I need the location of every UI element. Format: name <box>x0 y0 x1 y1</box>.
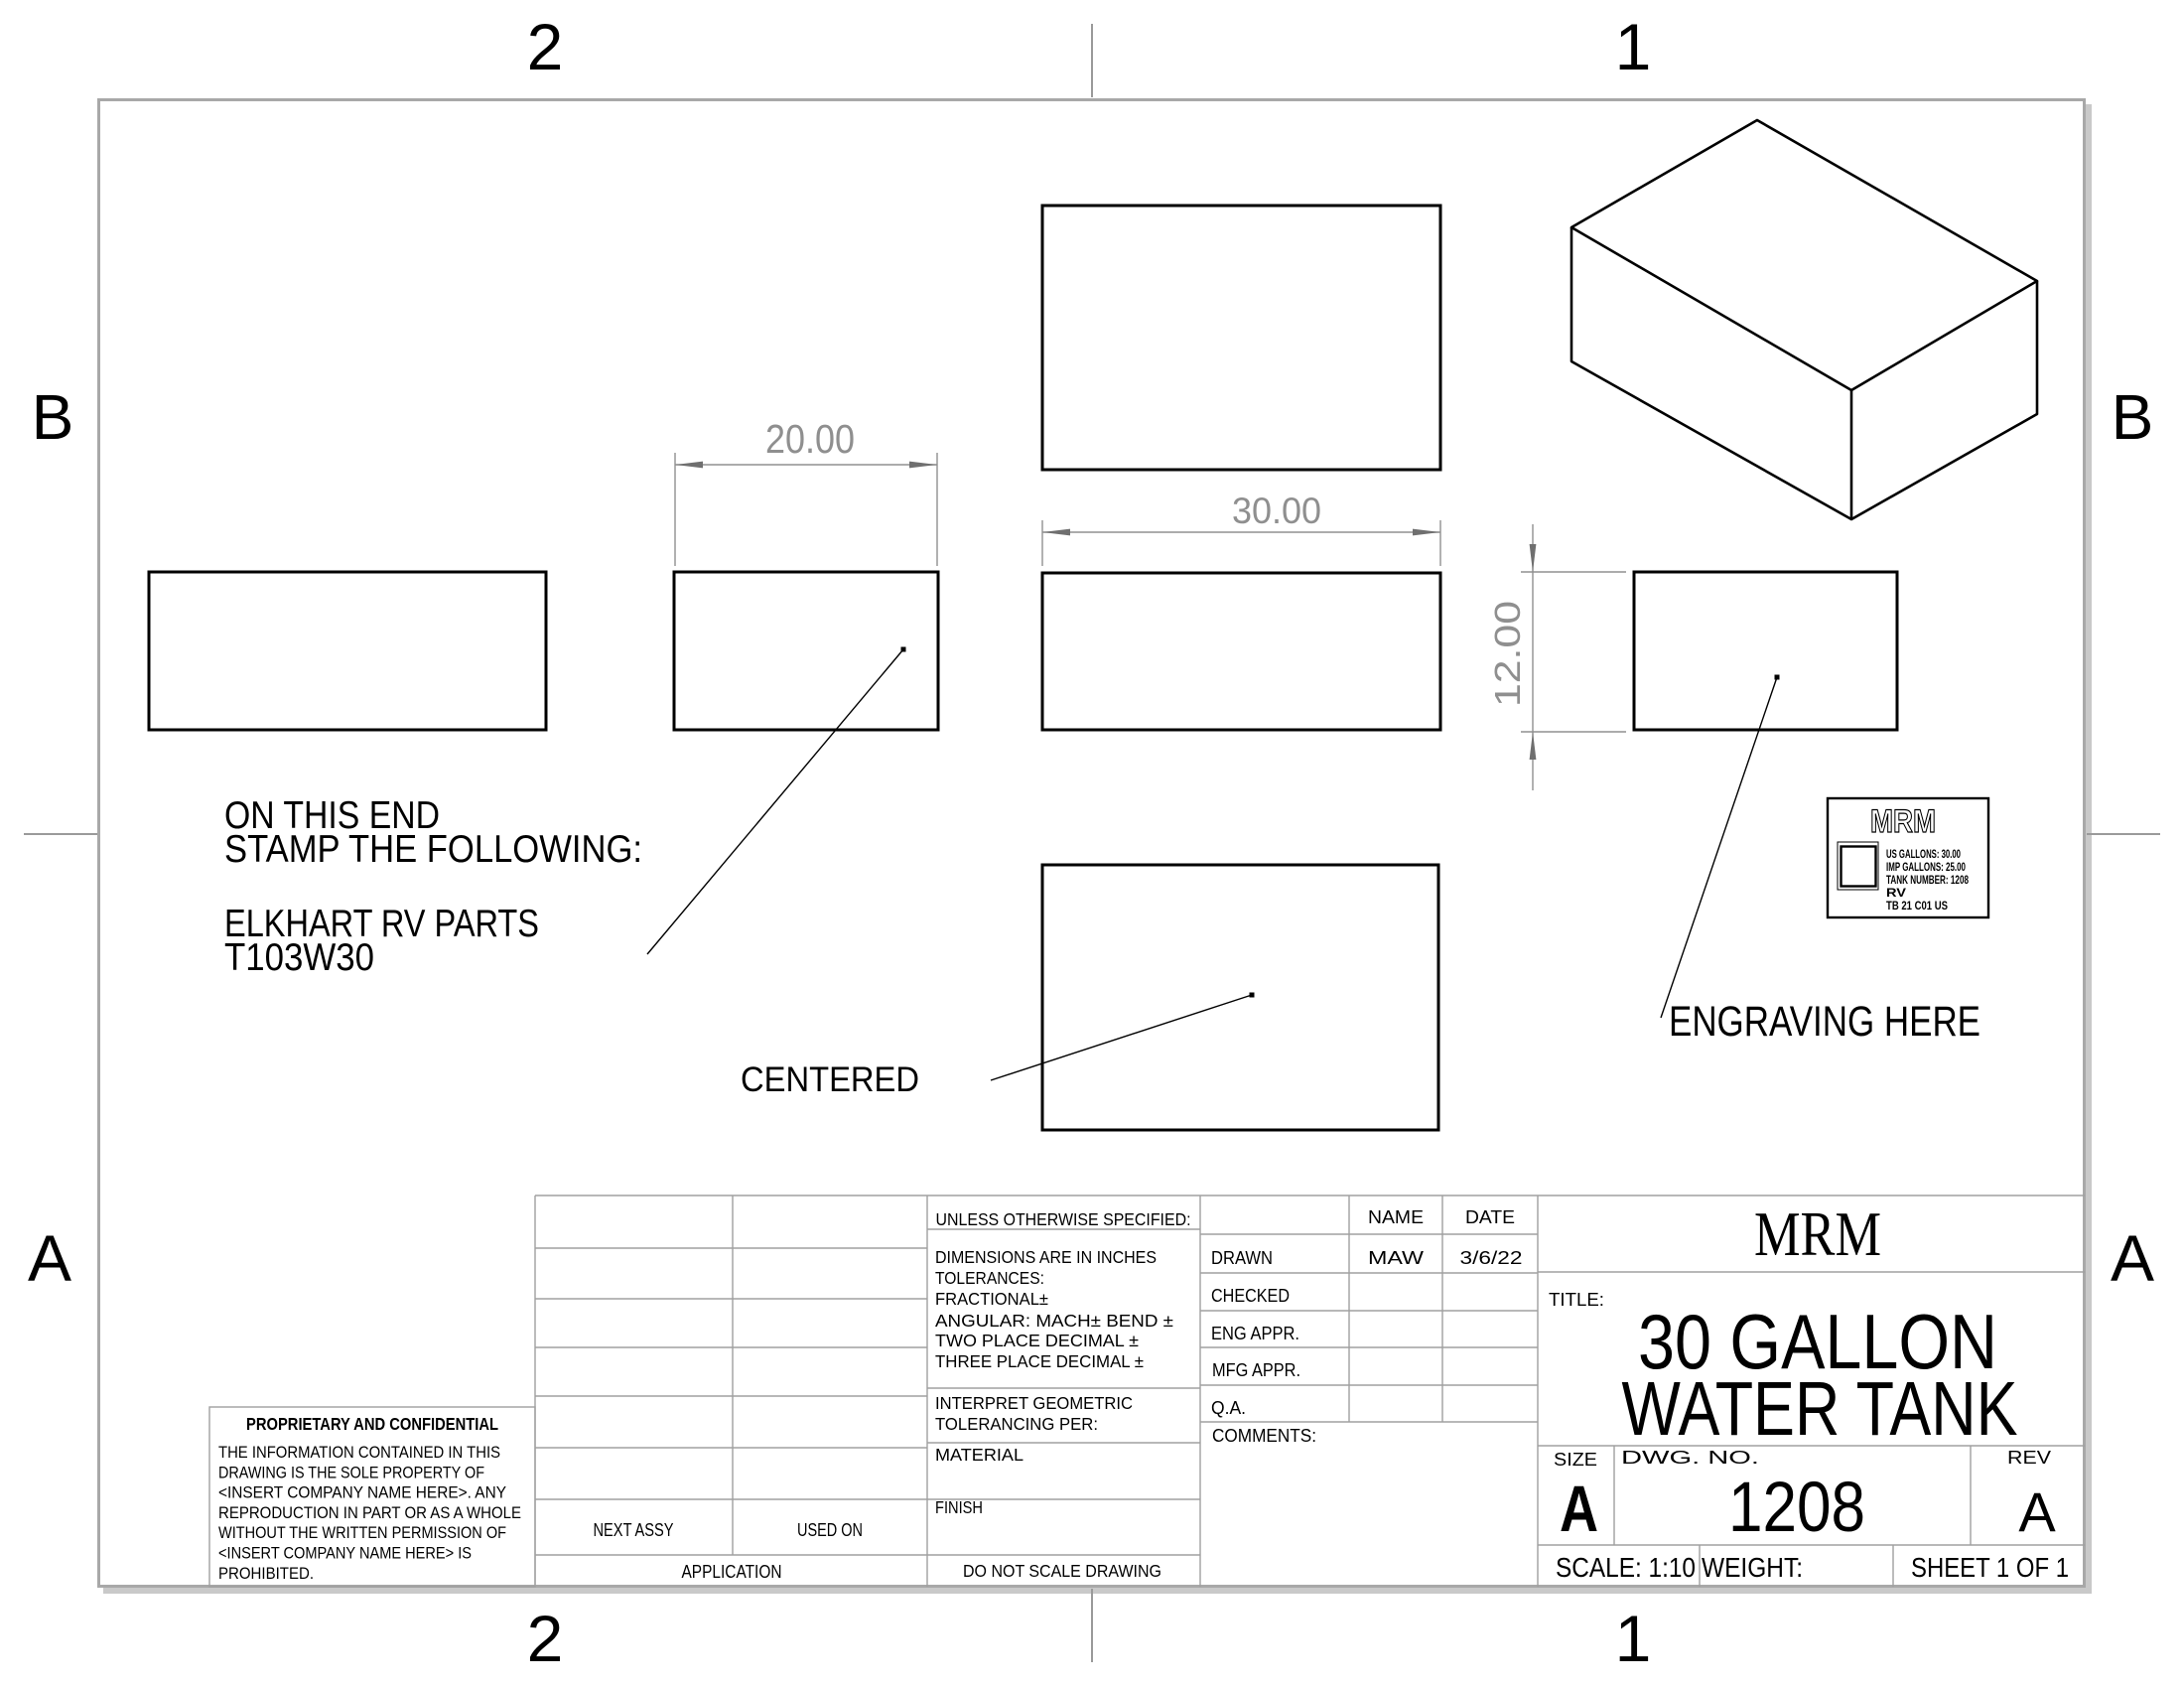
svg-text:COMMENTS:: COMMENTS: <box>1212 1426 1316 1446</box>
svg-text:T103W30: T103W30 <box>224 936 374 979</box>
svg-text:1208: 1208 <box>1728 1469 1865 1547</box>
svg-text:US GALLONS: 30.00: US GALLONS: 30.00 <box>1886 847 1961 861</box>
svg-text:<INSERT COMPANY NAME HERE> IS: <INSERT COMPANY NAME HERE> IS <box>218 1544 472 1563</box>
svg-text:MAW: MAW <box>1368 1248 1424 1268</box>
svg-text:A: A <box>1560 1472 1598 1545</box>
svg-text:A: A <box>2111 1221 2154 1295</box>
svg-text:2: 2 <box>527 10 564 83</box>
svg-text:Q.A.: Q.A. <box>1211 1398 1246 1418</box>
svg-text:THE INFORMATION CONTAINED IN T: THE INFORMATION CONTAINED IN THIS <box>218 1443 500 1462</box>
svg-text:APPLICATION: APPLICATION <box>682 1562 782 1582</box>
svg-text:A: A <box>2018 1480 2056 1543</box>
svg-text:TOLERANCING PER:: TOLERANCING PER: <box>935 1414 1098 1434</box>
svg-text:MRM: MRM <box>1754 1199 1881 1269</box>
svg-text:B: B <box>32 381 74 453</box>
svg-text:20.00: 20.00 <box>765 416 855 462</box>
svg-text:B: B <box>2112 381 2154 453</box>
svg-text:IMP GALLONS: 25.00: IMP GALLONS: 25.00 <box>1886 860 1966 874</box>
svg-text:ENG APPR.: ENG APPR. <box>1211 1324 1299 1343</box>
svg-text:TWO PLACE DECIMAL ±: TWO PLACE DECIMAL ± <box>935 1331 1139 1350</box>
svg-text:NAME: NAME <box>1368 1207 1424 1227</box>
svg-text:WATER TANK: WATER TANK <box>1622 1366 2018 1452</box>
svg-text:FINISH: FINISH <box>935 1497 983 1517</box>
svg-text:PROPRIETARY AND CONFIDENTIAL: PROPRIETARY AND CONFIDENTIAL <box>246 1414 498 1434</box>
svg-text:SCALE: 1:10: SCALE: 1:10 <box>1556 1552 1696 1583</box>
svg-text:<INSERT COMPANY NAME HERE>. A: <INSERT COMPANY NAME HERE>. ANY <box>218 1483 506 1502</box>
svg-text:ANGULAR: MACH± BEND ±: ANGULAR: MACH± BEND ± <box>935 1311 1173 1331</box>
svg-text:UNLESS OTHERWISE SPECIFIED:: UNLESS OTHERWISE SPECIFIED: <box>936 1209 1191 1229</box>
svg-text:A: A <box>28 1221 71 1295</box>
svg-text:DATE: DATE <box>1465 1207 1515 1227</box>
svg-text:USED ON: USED ON <box>797 1520 863 1540</box>
svg-text:1: 1 <box>1615 1602 1652 1675</box>
svg-text:WEIGHT:: WEIGHT: <box>1702 1552 1803 1583</box>
svg-text:TB 21 C01 US: TB 21 C01 US <box>1886 899 1948 913</box>
svg-text:30.00: 30.00 <box>1232 491 1321 531</box>
svg-text:SIZE: SIZE <box>1554 1450 1597 1470</box>
svg-text:TITLE:: TITLE: <box>1549 1290 1604 1310</box>
svg-text:INTERPRET GEOMETRIC: INTERPRET GEOMETRIC <box>935 1393 1133 1413</box>
svg-text:TOLERANCES:: TOLERANCES: <box>935 1268 1044 1288</box>
svg-text:PROHIBITED.: PROHIBITED. <box>218 1564 314 1583</box>
svg-text:NEXT ASSY: NEXT ASSY <box>594 1520 674 1540</box>
svg-text:TANK NUMBER: 1208: TANK NUMBER: 1208 <box>1886 873 1969 887</box>
svg-text:WITHOUT THE WRITTEN PERMISSION: WITHOUT THE WRITTEN PERMISSION OF <box>218 1523 506 1542</box>
svg-text:FRACTIONAL±: FRACTIONAL± <box>935 1289 1048 1309</box>
svg-text:3/6/22: 3/6/22 <box>1460 1248 1523 1268</box>
svg-text:DRAWING IS THE SOLE PROPERTY O: DRAWING IS THE SOLE PROPERTY OF <box>218 1463 484 1481</box>
svg-text:1: 1 <box>1615 10 1652 83</box>
svg-text:DWG. NO.: DWG. NO. <box>1621 1448 1759 1468</box>
svg-text:THREE PLACE DECIMAL ±: THREE PLACE DECIMAL ± <box>935 1351 1144 1371</box>
svg-text:MRM: MRM <box>1870 803 1936 839</box>
svg-text:REV: REV <box>2007 1448 2051 1468</box>
svg-text:REPRODUCTION IN PART OR AS A W: REPRODUCTION IN PART OR AS A WHOLE <box>218 1503 521 1522</box>
svg-text:STAMP THE FOLLOWING:: STAMP THE FOLLOWING: <box>224 828 642 871</box>
svg-text:ENGRAVING HERE: ENGRAVING HERE <box>1669 998 1980 1046</box>
svg-text:12.00: 12.00 <box>1487 601 1528 707</box>
svg-text:MATERIAL: MATERIAL <box>935 1445 1024 1465</box>
svg-text:DIMENSIONS ARE IN INCHES: DIMENSIONS ARE IN INCHES <box>935 1247 1157 1267</box>
svg-text:2: 2 <box>527 1602 564 1675</box>
svg-text:MFG APPR.: MFG APPR. <box>1212 1360 1300 1380</box>
svg-text:SHEET 1 OF 1: SHEET 1 OF 1 <box>1911 1552 2069 1583</box>
svg-text:DO NOT SCALE DRAWING: DO NOT SCALE DRAWING <box>963 1561 1161 1581</box>
svg-text:RV: RV <box>1886 886 1906 900</box>
svg-text:DRAWN: DRAWN <box>1211 1248 1273 1268</box>
svg-text:CENTERED: CENTERED <box>741 1060 919 1099</box>
svg-text:CHECKED: CHECKED <box>1211 1286 1290 1306</box>
